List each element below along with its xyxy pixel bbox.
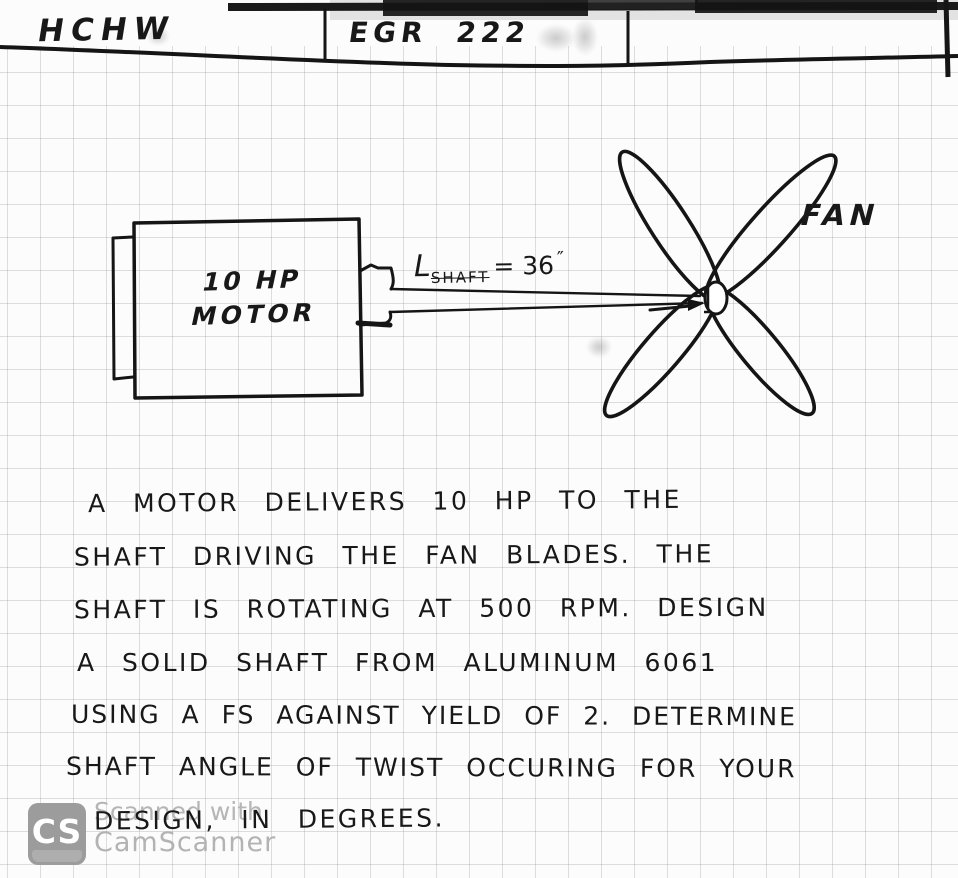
- shaft-length-value: = 36: [493, 251, 554, 281]
- pencil-smudge: [572, 18, 598, 56]
- problem-line-6: SHAFT ANGLE OF TWIST OCCURING FOR YOUR: [66, 752, 797, 784]
- fan-blade-lower-right: [693, 275, 827, 426]
- shaft-length-label: LSHAFT= 36″: [414, 247, 565, 285]
- problem-line-7: DESIGN, IN DEGREES.: [94, 803, 445, 835]
- fan-label: FAN: [797, 198, 884, 232]
- pencil-smudge: [536, 24, 576, 52]
- motor-name-label: MOTOR: [188, 298, 319, 331]
- fan-hub: [705, 282, 727, 314]
- shaft-arrow-line: [650, 306, 690, 310]
- camscanner-logo-text: CS: [32, 812, 83, 851]
- motor-mount-plate: [113, 237, 133, 379]
- motor-power-label: 10 HP: [199, 264, 304, 296]
- shaft-coupling-base: [358, 323, 390, 325]
- fan-blades: [592, 142, 848, 428]
- page-title: HCHW: [35, 11, 178, 49]
- problem-line-1: A MOTOR DELIVERS 10 HP TO THE: [88, 485, 682, 518]
- problem-line-2: SHAFT DRIVING THE FAN BLADES. THE: [74, 539, 714, 571]
- shaft-length-subscript: SHAFT: [431, 268, 490, 287]
- fan-hub-detail: [704, 288, 712, 312]
- shaft-length-symbol: L: [414, 249, 431, 284]
- shaft-coupling: [360, 265, 393, 325]
- problem-line-4: A SOLID SHAFT FROM ALUMINUM 6061: [77, 648, 718, 677]
- camscanner-logo-badge: CS: [28, 803, 86, 865]
- course-code: EGR 222: [347, 16, 533, 49]
- pencil-smudge: [586, 336, 612, 358]
- scanned-homework-page: CS Scanned with CamScanner HCHW EGR 222 …: [0, 0, 958, 878]
- shaft-top-line: [391, 289, 700, 296]
- fan-blade-lower-left: [592, 274, 732, 428]
- shaft-length-unit-mark: ″: [557, 248, 564, 270]
- fan-blade-upper-left: [606, 142, 734, 310]
- header-rule: [0, 47, 958, 66]
- camscanner-logo-lip: [32, 850, 82, 862]
- shaft-bottom-line: [390, 303, 702, 312]
- problem-line-5: USING A FS AGAINST YIELD OF 2. DETERMINE: [71, 700, 797, 732]
- problem-line-3: SHAFT IS ROTATING AT 500 RPM. DESIGN: [74, 593, 769, 624]
- shaft-arrowhead: [688, 299, 705, 311]
- hand-drawn-diagram: [0, 0, 958, 878]
